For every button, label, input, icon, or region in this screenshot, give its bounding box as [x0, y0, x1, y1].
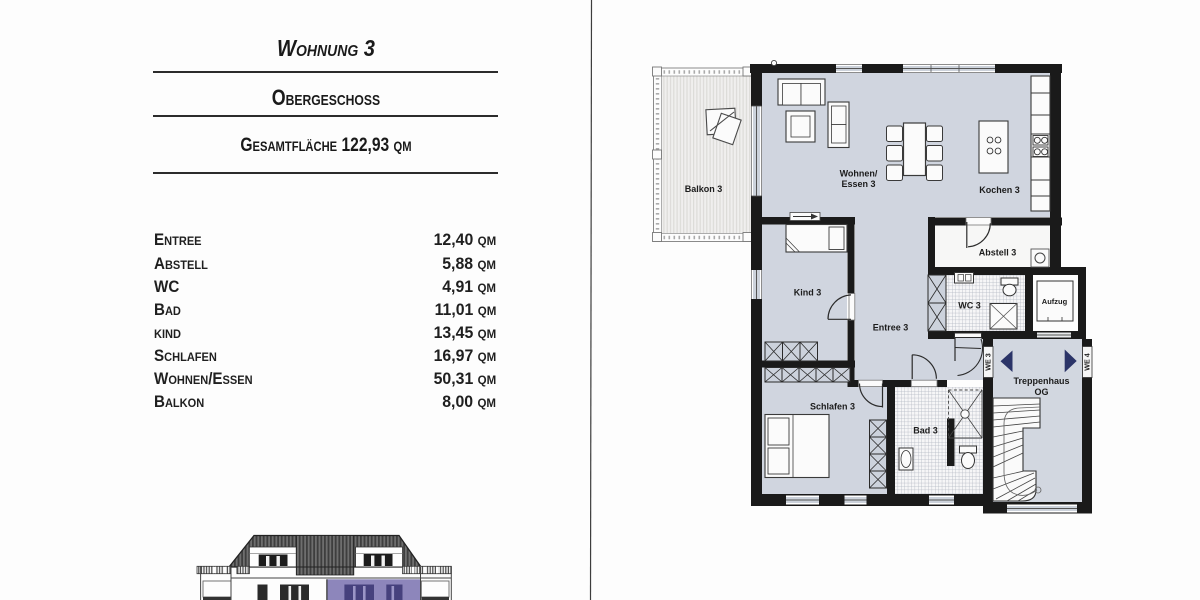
- svg-text:WE 3: WE 3: [984, 353, 993, 371]
- svg-text:Essen 3: Essen 3: [841, 179, 875, 189]
- svg-text:Treppenhaus: Treppenhaus: [1013, 376, 1069, 386]
- svg-text:Abstell 3: Abstell 3: [979, 248, 1017, 258]
- svg-text:Entree 3: Entree 3: [873, 323, 909, 333]
- svg-text:WE 4: WE 4: [1083, 353, 1092, 371]
- svg-text:Kind 3: Kind 3: [794, 288, 822, 298]
- svg-text:Bad 3: Bad 3: [913, 426, 938, 436]
- svg-text:Balkon 3: Balkon 3: [685, 184, 723, 194]
- svg-text:Wohnen/: Wohnen/: [840, 169, 878, 179]
- svg-text:Schlafen 3: Schlafen 3: [810, 402, 855, 412]
- svg-text:Kochen 3: Kochen 3: [979, 185, 1020, 195]
- svg-text:WC 3: WC 3: [958, 301, 981, 311]
- svg-text:Aufzug: Aufzug: [1042, 297, 1068, 306]
- svg-text:OG: OG: [1034, 387, 1048, 397]
